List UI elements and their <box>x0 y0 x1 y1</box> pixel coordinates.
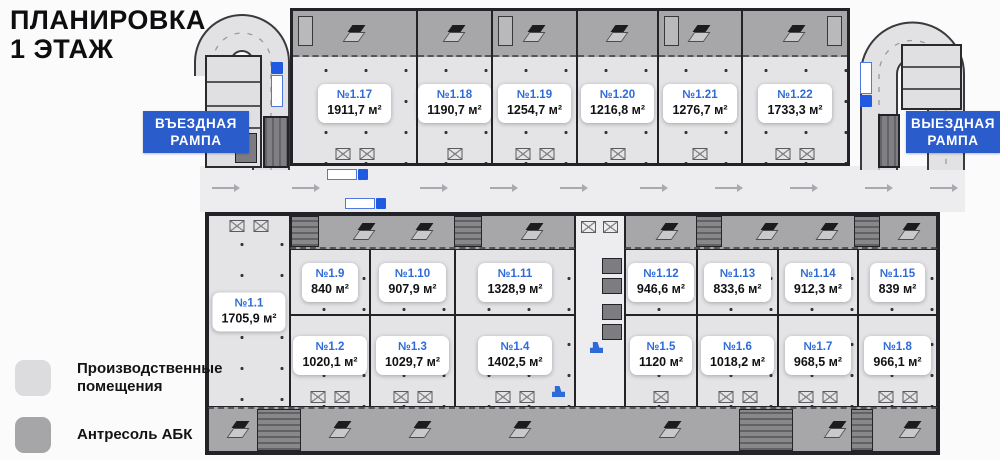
unit-number: №1.20 <box>590 89 645 101</box>
unit-card[interactable]: №1.20 1216,8 м² <box>581 84 654 123</box>
unit-area: 1120 м² <box>639 355 683 369</box>
unit-card[interactable]: №1.13 833,6 м² <box>704 263 770 302</box>
dock-hatch-icon <box>603 221 618 233</box>
unit-1-17: №1.17 1911,7 м² <box>293 11 418 163</box>
unit-card[interactable]: №1.14 912,3 м² <box>785 263 851 302</box>
room-divider <box>903 66 960 68</box>
unit-number: №1.22 <box>767 89 822 101</box>
production-area: №1.20 1216,8 м² <box>578 57 657 163</box>
unit-number: №1.19 <box>507 89 562 101</box>
truck-cab <box>358 169 368 180</box>
stairs-icon <box>824 421 848 438</box>
unit-number: №1.1 <box>221 298 276 310</box>
stairs-icon <box>329 421 353 438</box>
dock-doors <box>878 391 917 403</box>
dock-hatch-icon <box>654 391 669 403</box>
unit-area: 839 м² <box>879 282 917 296</box>
forklift-icon <box>590 342 603 353</box>
dock-hatch-icon <box>742 391 757 403</box>
unit-1-21: №1.21 1276,7 м² <box>659 11 743 163</box>
mezzanine-strip-bottom <box>208 407 937 452</box>
unit-card[interactable]: №1.21 1276,7 м² <box>663 84 736 123</box>
dock-hatch-icon <box>776 148 791 160</box>
unit-area: 1018,2 м² <box>710 355 765 369</box>
elevator-box <box>602 278 622 294</box>
dock-doors <box>335 148 374 160</box>
mezzanine-swatch <box>15 417 51 453</box>
dock-hatch-icon <box>799 391 814 403</box>
stair-core <box>454 216 482 247</box>
unit-1-3: №1.3 1029,7 м² <box>370 315 455 407</box>
unit-card[interactable]: №1.19 1254,7 м² <box>498 84 571 123</box>
unit-card[interactable]: №1.8 966,1 м² <box>864 336 930 375</box>
unit-card[interactable]: №1.10 907,9 м² <box>379 263 445 302</box>
dock-doors <box>610 148 625 160</box>
truck-trailer <box>345 198 375 209</box>
stairs-icon <box>606 25 630 42</box>
truck-trailer <box>327 169 357 180</box>
mezzanine-strip <box>290 215 575 249</box>
stairs-icon <box>656 223 680 240</box>
unit-number: №1.6 <box>710 341 765 353</box>
stairs-icon <box>227 421 251 438</box>
truck-cab <box>860 95 872 107</box>
unit-1-12: №1.12 946,6 м² <box>625 249 697 315</box>
unit-area: 1216,8 м² <box>590 103 645 117</box>
dock-hatch-icon <box>693 148 708 160</box>
unit-1-9: №1.9 840 м² <box>290 249 370 315</box>
dock-hatch-icon <box>335 148 350 160</box>
legend: Производственные помещения Антресоль АБК <box>15 360 222 460</box>
unit-1-20: №1.20 1216,8 м² <box>578 11 659 163</box>
top-building: №1.17 1911,7 м² №1.18 1190,7 м² <box>290 8 850 166</box>
room-divider <box>903 88 960 90</box>
stair-core <box>851 409 873 451</box>
unit-1-6: №1.6 1018,2 м² <box>697 315 778 407</box>
stair-core <box>739 409 793 451</box>
legend-item-mezzanine: Антресоль АБК <box>15 417 222 453</box>
entry-ramp-line2: РАМПА <box>143 133 249 148</box>
truck-icon <box>271 62 283 107</box>
unit-area: 1254,7 м² <box>507 103 562 117</box>
unit-1-11: №1.11 1328,9 м² <box>455 249 575 315</box>
unit-number: №1.2 <box>302 341 357 353</box>
elevator-box <box>602 304 622 320</box>
unit-area: 946,6 м² <box>637 282 685 296</box>
dock-hatch-icon <box>417 391 432 403</box>
room-divider <box>207 105 260 107</box>
unit-number: №1.3 <box>385 341 440 353</box>
mezzanine-strip <box>743 11 847 57</box>
unit-1-8: №1.8 966,1 м² <box>858 315 937 407</box>
dock-hatch-icon <box>610 148 625 160</box>
dock-doors <box>693 148 708 160</box>
stairs-icon <box>509 421 533 438</box>
dock-hatch-icon <box>878 391 893 403</box>
unit-card[interactable]: №1.22 1733,3 м² <box>758 84 831 123</box>
unit-1-14: №1.14 912,3 м² <box>778 249 858 315</box>
unit-area: 966,1 м² <box>873 355 921 369</box>
unit-area: 1020,1 м² <box>302 355 357 369</box>
dock-hatch-icon <box>520 391 535 403</box>
dock-doors <box>799 391 838 403</box>
stairs-icon <box>816 223 840 240</box>
elevator-box <box>602 258 622 274</box>
unit-area: 1402,5 м² <box>487 355 542 369</box>
dock-hatch-icon <box>230 220 245 232</box>
dock-hatch-icon <box>254 220 269 232</box>
truck-icon <box>860 62 872 107</box>
dock-hatch-icon <box>800 148 815 160</box>
unit-1-15: №1.15 839 м² <box>858 249 937 315</box>
unit-area: 1328,9 м² <box>487 282 542 296</box>
dock-hatch-icon <box>496 391 511 403</box>
truck-trailer <box>860 62 872 94</box>
unit-card[interactable]: №1.17 1911,7 м² <box>318 84 390 123</box>
stair-core <box>696 216 722 247</box>
dock-hatch-icon <box>447 148 462 160</box>
unit-area: 840 м² <box>311 282 349 296</box>
mezzanine-strip <box>493 11 576 57</box>
dock-doors <box>447 148 462 160</box>
dock-doors <box>311 391 350 403</box>
unit-card[interactable]: №1.1 1705,9 м² <box>212 293 285 332</box>
stairs-icon <box>899 421 923 438</box>
dock-doors <box>515 148 554 160</box>
stair-core <box>854 216 880 247</box>
unit-number: №1.18 <box>427 89 481 101</box>
dock-hatch-icon <box>335 391 350 403</box>
dock-hatch-icon <box>311 391 326 403</box>
unit-1-22: №1.22 1733,3 м² <box>743 11 847 163</box>
unit-1-5: №1.5 1120 м² <box>625 315 697 407</box>
unit-number: №1.4 <box>487 341 542 353</box>
unit-card[interactable]: №1.2 1020,1 м² <box>293 336 366 375</box>
truck-trailer <box>271 75 283 107</box>
stairs-icon <box>756 223 780 240</box>
stairs-icon <box>443 25 467 42</box>
unit-card[interactable]: №1.9 840 м² <box>302 263 358 302</box>
dock-hatch-icon <box>393 391 408 403</box>
stairs-icon <box>409 421 433 438</box>
room-divider <box>207 81 260 83</box>
mezzanine-strip <box>625 215 937 249</box>
unit-card[interactable]: №1.5 1120 м² <box>630 336 692 375</box>
mezz-room <box>827 16 842 46</box>
stairs-icon <box>783 25 807 42</box>
exit-stair-core <box>878 114 900 168</box>
mezz-room <box>498 16 513 46</box>
entry-stair-core <box>263 116 289 168</box>
mezz-room <box>664 16 679 46</box>
stairs-icon <box>353 223 377 240</box>
stairs-icon <box>659 421 683 438</box>
dock-hatch-icon <box>902 391 917 403</box>
production-area: №1.22 1733,3 м² <box>743 57 847 163</box>
unit-number: №1.8 <box>873 341 921 353</box>
dock-hatch-icon <box>359 148 374 160</box>
service-corridor <box>575 215 625 407</box>
mezzanine-strip <box>418 11 491 57</box>
dock-doors <box>393 391 432 403</box>
truck-icon <box>327 169 368 180</box>
unit-number: №1.13 <box>713 268 761 280</box>
production-area: №1.21 1276,7 м² <box>659 57 741 163</box>
exit-service-building <box>901 44 962 110</box>
stairs-icon <box>688 25 712 42</box>
unit-card[interactable]: №1.15 839 м² <box>870 263 926 302</box>
production-area: №1.19 1254,7 м² <box>493 57 576 163</box>
stairs-icon <box>898 223 922 240</box>
legend-label: Антресоль АБК <box>77 426 192 444</box>
dock-hatch-icon <box>539 148 554 160</box>
truck-cab <box>376 198 386 209</box>
elevator-box <box>602 324 622 340</box>
unit-number: №1.15 <box>879 268 917 280</box>
entry-ramp-line1: ВЪЕЗДНАЯ <box>143 116 249 131</box>
unit-card[interactable]: №1.11 1328,9 м² <box>478 263 551 302</box>
unit-area: 968,5 м² <box>794 355 842 369</box>
stairs-icon <box>521 223 545 240</box>
unit-number: №1.10 <box>388 268 436 280</box>
unit-area: 1029,7 м² <box>385 355 440 369</box>
unit-area: 1705,9 м² <box>221 312 276 326</box>
dock-doors <box>654 391 669 403</box>
unit-number: №1.14 <box>794 268 842 280</box>
bottom-building: №1.1 1705,9 м² №1.9 840 м² <box>205 212 940 455</box>
exit-ramp-line1: ВЫЕЗДНАЯ <box>906 116 1000 131</box>
stairs-icon <box>411 223 435 240</box>
production-area: №1.17 1911,7 м² <box>293 57 416 163</box>
unit-number: №1.11 <box>487 268 542 280</box>
unit-area: 907,9 м² <box>388 282 436 296</box>
floor-plan: ПЛАНИРОВКА 1 ЭТАЖ <box>0 0 1000 460</box>
unit-card[interactable]: №1.4 1402,5 м² <box>478 336 551 375</box>
unit-card[interactable]: №1.6 1018,2 м² <box>701 336 774 375</box>
dock-hatch-icon <box>581 221 596 233</box>
unit-area: 1911,7 м² <box>327 103 381 117</box>
stair-core <box>257 409 301 451</box>
stairs-icon <box>523 25 547 42</box>
unit-area: 833,6 м² <box>713 282 761 296</box>
unit-area: 1190,7 м² <box>427 103 481 117</box>
dock-hatch-icon <box>718 391 733 403</box>
unit-number: №1.17 <box>327 89 381 101</box>
unit-1-19: №1.19 1254,7 м² <box>493 11 578 163</box>
production-area: №1.18 1190,7 м² <box>418 57 491 163</box>
truck-icon <box>345 198 386 209</box>
exit-ramp-line2: РАМПА <box>906 133 1000 148</box>
unit-number: №1.7 <box>794 341 842 353</box>
entry-ramp-label: ВЪЕЗДНАЯ РАМПА <box>143 111 249 153</box>
dock-doors <box>776 148 815 160</box>
stair-core <box>291 216 319 247</box>
unit-number: №1.9 <box>311 268 349 280</box>
legend-item-production: Производственные помещения <box>15 360 222 396</box>
dock-doors <box>230 220 269 232</box>
unit-area: 912,3 м² <box>794 282 842 296</box>
dock-doors <box>496 391 535 403</box>
mezzanine-strip <box>659 11 741 57</box>
unit-area: 1733,3 м² <box>767 103 822 117</box>
unit-1-2: №1.2 1020,1 м² <box>290 315 370 407</box>
mezz-room <box>298 16 313 46</box>
exit-ramp-label: ВЫЕЗДНАЯ РАМПА <box>906 111 1000 153</box>
unit-1-10: №1.10 907,9 м² <box>370 249 455 315</box>
mezzanine-strip <box>578 11 657 57</box>
unit-area: 1276,7 м² <box>672 103 727 117</box>
unit-number: №1.5 <box>639 341 683 353</box>
legend-label: Производственные помещения <box>77 360 222 395</box>
unit-1-18: №1.18 1190,7 м² <box>418 11 493 163</box>
unit-card[interactable]: №1.12 946,6 м² <box>628 263 694 302</box>
unit-number: №1.12 <box>637 268 685 280</box>
mezzanine-strip <box>293 11 416 57</box>
unit-1-13: №1.13 833,6 м² <box>697 249 778 315</box>
unit-card[interactable]: №1.18 1190,7 м² <box>418 84 490 123</box>
unit-1-7: №1.7 968,5 м² <box>778 315 858 407</box>
dock-hatch-icon <box>823 391 838 403</box>
unit-card[interactable]: №1.7 968,5 м² <box>785 336 851 375</box>
dock-doors <box>718 391 757 403</box>
unit-card[interactable]: №1.3 1029,7 м² <box>376 336 449 375</box>
truck-cab <box>271 62 283 74</box>
stairs-icon <box>343 25 367 42</box>
unit-number: №1.21 <box>672 89 727 101</box>
production-swatch <box>15 360 51 396</box>
dock-hatch-icon <box>515 148 530 160</box>
